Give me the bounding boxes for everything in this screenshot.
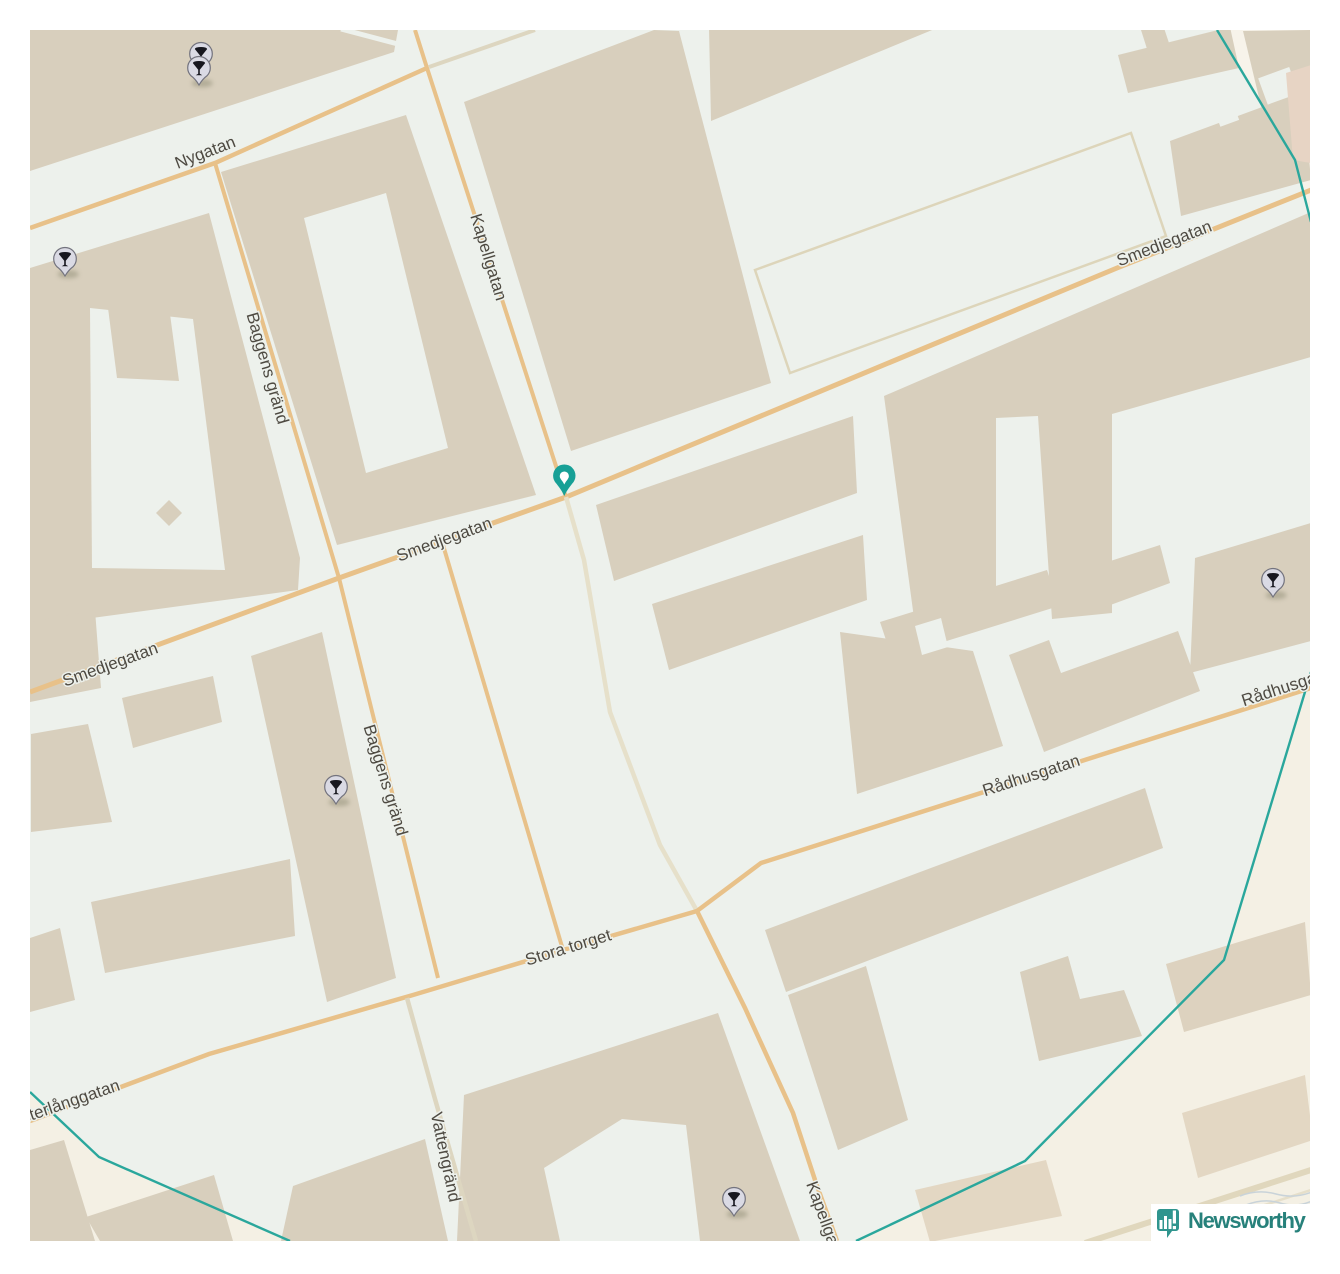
svg-text:Newsworthy: Newsworthy [1188,1208,1307,1233]
